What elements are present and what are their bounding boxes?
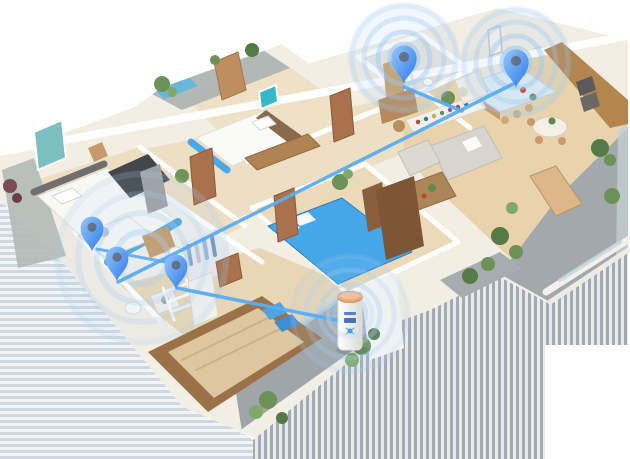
coffee-table-plant: [428, 184, 436, 192]
plant-bb-1: [259, 391, 277, 409]
flowers-master-balcony-2: [12, 193, 22, 203]
plant-tl-balcony-1: [154, 76, 170, 92]
plant-rb-bottom-1: [491, 227, 509, 245]
floorplan-scene: [0, 0, 630, 459]
plant-rb-top-2: [604, 154, 616, 166]
plant-rb-top-1: [591, 139, 609, 157]
smart-home-floorplan-illustration: [0, 0, 630, 459]
plant-hall-2: [343, 169, 353, 179]
plant-bb-3: [276, 412, 288, 424]
device-display: [344, 318, 356, 323]
plant-tl-balcony-4: [245, 43, 259, 57]
map-pin-cluster-3-hole: [171, 260, 180, 269]
plant-rb-palm: [506, 202, 518, 214]
map-pin-cluster-2-hole: [112, 252, 121, 261]
stool-hall: [393, 120, 405, 132]
plant-tl-balcony-3: [210, 55, 220, 65]
door-3: [330, 88, 354, 142]
device-label-bar: [344, 312, 356, 315]
plant-tl-balcony-2: [167, 87, 177, 97]
plant-mini-balcony-1: [462, 268, 478, 284]
book-3: [432, 114, 436, 118]
dining-plant: [549, 118, 556, 125]
chair-study: [458, 87, 468, 97]
coffee-table-red-item: [422, 194, 427, 199]
map-pin-kitchen-hole: [511, 56, 521, 66]
book-4: [440, 111, 444, 115]
dining-chair-2: [535, 136, 543, 144]
map-pin-bathroom-hole: [399, 52, 409, 62]
flowers-master-balcony-1: [3, 179, 17, 193]
dining-chair-1: [527, 118, 535, 126]
device-body[interactable]: [338, 298, 362, 350]
plant-bb-2: [249, 405, 263, 419]
dining-chair-3: [558, 137, 566, 145]
map-pin-cluster-1-hole: [87, 222, 96, 231]
plant-mini-balcony-2: [481, 257, 495, 271]
book-2: [424, 117, 428, 121]
book-1: [416, 120, 420, 124]
plant-rb-mid: [604, 188, 620, 204]
plant-rb-bottom-2: [509, 245, 523, 259]
